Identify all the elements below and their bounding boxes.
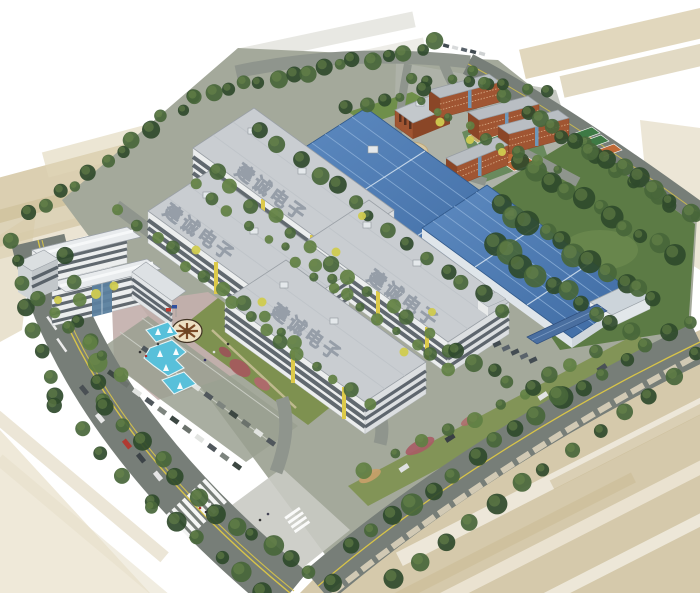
blue-flag xyxy=(172,305,177,309)
factory-3-roof-unit xyxy=(413,260,421,266)
factory-1-roof-unit xyxy=(298,168,306,174)
red-flag xyxy=(166,308,171,312)
plaza-emblem xyxy=(172,320,202,343)
aerial-rendering: 建诚电子 建诚电子 xyxy=(0,0,700,593)
canteen-window xyxy=(409,121,412,129)
scene-canvas: 建诚电子 建诚电子 xyxy=(0,0,700,593)
factory-4-roof-unit xyxy=(330,318,338,324)
factory-4-roof-unit xyxy=(280,282,288,288)
canteen-window xyxy=(399,114,402,122)
warehouse-1-roof-unit xyxy=(368,146,378,153)
factory-3-roof-unit xyxy=(363,222,371,228)
